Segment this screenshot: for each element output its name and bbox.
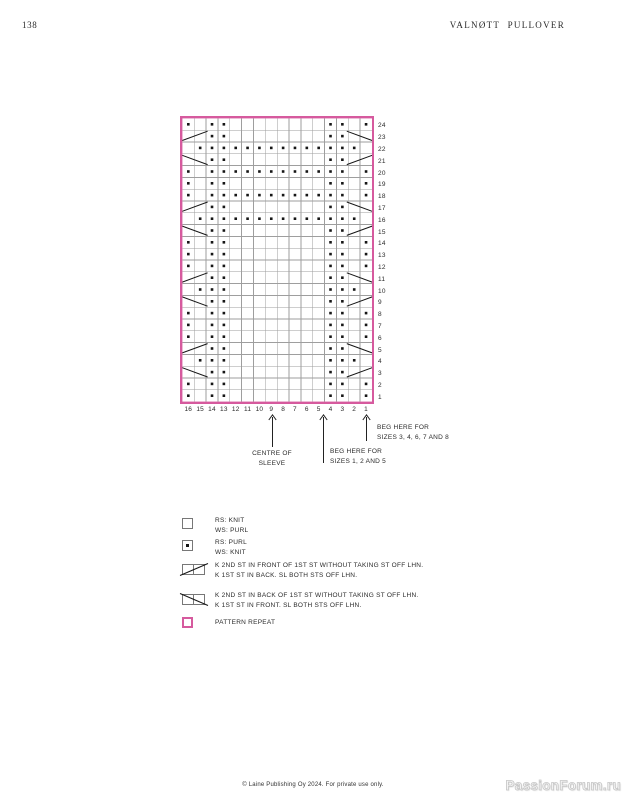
legend-text-line: K 1ST ST IN BACK. SL BOTH STS OFF LHN. bbox=[215, 571, 423, 581]
pattern-repeat-icon bbox=[182, 617, 193, 628]
legend-text-line: PATTERN REPEAT bbox=[215, 618, 275, 628]
purl-dot bbox=[353, 288, 356, 291]
purl-dot bbox=[294, 217, 297, 220]
purl-dot bbox=[223, 312, 226, 315]
purl-dot bbox=[341, 276, 344, 279]
purl-dot bbox=[199, 288, 202, 291]
chart-grid bbox=[180, 116, 374, 404]
purl-dot bbox=[223, 288, 226, 291]
purl-dot bbox=[341, 135, 344, 138]
row-number: 19 bbox=[378, 179, 394, 191]
row-number: 22 bbox=[378, 144, 394, 156]
purl-dot bbox=[329, 206, 332, 209]
column-number: 10 bbox=[253, 406, 265, 413]
purl-dot bbox=[341, 123, 344, 126]
purl-dot bbox=[282, 194, 285, 197]
purl-dot bbox=[187, 123, 190, 126]
purl-dot bbox=[223, 182, 226, 185]
purl-dot bbox=[329, 276, 332, 279]
purl-dot bbox=[329, 383, 332, 386]
purl-dot bbox=[365, 123, 368, 126]
column-number: 13 bbox=[218, 406, 230, 413]
purl-dot bbox=[234, 194, 237, 197]
purl-dot bbox=[353, 359, 356, 362]
purl-dot bbox=[341, 229, 344, 232]
legend-text-line: RS: KNIT bbox=[215, 516, 248, 526]
purl-dot bbox=[211, 241, 214, 244]
row-number: 24 bbox=[378, 120, 394, 132]
purl-dot bbox=[353, 147, 356, 150]
purl-dot bbox=[211, 170, 214, 173]
purl-dot bbox=[223, 123, 226, 126]
purl-dot bbox=[211, 335, 214, 338]
legend-text-line: K 2ND ST IN BACK OF 1ST ST WITHOUT TAKIN… bbox=[215, 591, 418, 601]
row-number: 15 bbox=[378, 227, 394, 239]
row-number: 13 bbox=[378, 250, 394, 262]
purl-dot bbox=[329, 359, 332, 362]
purl-dot bbox=[306, 147, 309, 150]
purl-dot bbox=[223, 147, 226, 150]
page-title: VALNØTT PULLOVER bbox=[450, 20, 565, 30]
up-arrow-beg-sizes-3-4-6-7-8 bbox=[362, 414, 371, 441]
purl-dot bbox=[329, 288, 332, 291]
centre-of-sleeve-label: CENTRE OF SLEEVE bbox=[227, 449, 317, 468]
purl-dot bbox=[270, 194, 273, 197]
purl-dot bbox=[341, 206, 344, 209]
purl-dot bbox=[270, 217, 273, 220]
knit-icon bbox=[182, 518, 193, 529]
cable-front-icon bbox=[180, 563, 208, 581]
purl-dot bbox=[341, 182, 344, 185]
column-number: 11 bbox=[242, 406, 254, 413]
purl-dot bbox=[258, 217, 261, 220]
purl-dot bbox=[329, 241, 332, 244]
column-number: 3 bbox=[336, 406, 348, 413]
purl-dot bbox=[365, 182, 368, 185]
row-number: 6 bbox=[378, 333, 394, 345]
purl-dot bbox=[329, 229, 332, 232]
purl-dot bbox=[306, 217, 309, 220]
row-number: 14 bbox=[378, 238, 394, 250]
purl-dot bbox=[211, 394, 214, 397]
purl-dot bbox=[211, 371, 214, 374]
purl-dot bbox=[329, 170, 332, 173]
purl-dot bbox=[223, 206, 226, 209]
purl-dot bbox=[341, 371, 344, 374]
row-number: 20 bbox=[378, 168, 394, 180]
purl-dot bbox=[341, 217, 344, 220]
purl-dot bbox=[294, 170, 297, 173]
purl-dot bbox=[341, 241, 344, 244]
purl-dot bbox=[223, 276, 226, 279]
purl-dot bbox=[223, 347, 226, 350]
row-number: 23 bbox=[378, 132, 394, 144]
row-number: 16 bbox=[378, 215, 394, 227]
purl-dot bbox=[199, 359, 202, 362]
purl-dot bbox=[223, 265, 226, 268]
row-number: 7 bbox=[378, 321, 394, 333]
purl-dot bbox=[223, 170, 226, 173]
legend-text-line: RS: PURL bbox=[215, 538, 247, 548]
purl-dot bbox=[199, 147, 202, 150]
purl-dot bbox=[211, 182, 214, 185]
up-arrow-centre-of-sleeve bbox=[268, 414, 277, 447]
column-number: 4 bbox=[325, 406, 337, 413]
purl-dot bbox=[223, 158, 226, 161]
purl-dot bbox=[187, 170, 190, 173]
purl-dot bbox=[223, 229, 226, 232]
beg-here-sizes-1-2-5-label: BEG HERE FOR SIZES 1, 2 AND 5 bbox=[330, 447, 386, 466]
purl-dot bbox=[329, 394, 332, 397]
column-number: 1 bbox=[360, 406, 372, 413]
purl-dot bbox=[329, 194, 332, 197]
purl-dot bbox=[294, 194, 297, 197]
row-number: 17 bbox=[378, 203, 394, 215]
column-number: 8 bbox=[277, 406, 289, 413]
purl-dot bbox=[223, 253, 226, 256]
column-number: 9 bbox=[265, 406, 277, 413]
purl-dot bbox=[341, 324, 344, 327]
purl-dot bbox=[365, 265, 368, 268]
column-number: 15 bbox=[194, 406, 206, 413]
row-number: 3 bbox=[378, 368, 394, 380]
purl-dot bbox=[317, 147, 320, 150]
purl-dot bbox=[306, 170, 309, 173]
purl-dot bbox=[211, 324, 214, 327]
purl-dot bbox=[211, 300, 214, 303]
centre-of-sleeve-line1: CENTRE OF bbox=[227, 449, 317, 459]
row-number: 11 bbox=[378, 274, 394, 286]
purl-dot bbox=[211, 194, 214, 197]
purl-dot bbox=[365, 312, 368, 315]
column-number: 7 bbox=[289, 406, 301, 413]
row-number: 8 bbox=[378, 309, 394, 321]
pattern-book-page: 138 VALNØTT PULLOVER 2423222120191817161… bbox=[0, 0, 626, 800]
purl-dot bbox=[187, 182, 190, 185]
purl-dot bbox=[223, 300, 226, 303]
legend-text-line: WS: PURL bbox=[215, 526, 248, 536]
purl-dot bbox=[329, 123, 332, 126]
purl-dot bbox=[270, 170, 273, 173]
purl-dot bbox=[317, 217, 320, 220]
purl-dot bbox=[187, 312, 190, 315]
knitting-chart bbox=[180, 116, 374, 409]
purl-dot bbox=[211, 229, 214, 232]
purl-dot bbox=[187, 253, 190, 256]
purl-dot bbox=[211, 312, 214, 315]
purl-dot bbox=[187, 394, 190, 397]
purl-dot bbox=[282, 147, 285, 150]
purl-dot bbox=[270, 147, 273, 150]
row-number: 9 bbox=[378, 297, 394, 309]
purl-dot bbox=[329, 312, 332, 315]
purl-dot bbox=[341, 394, 344, 397]
purl-dot bbox=[223, 241, 226, 244]
purl-dot bbox=[365, 335, 368, 338]
purl-dot bbox=[365, 383, 368, 386]
purl-dot bbox=[341, 147, 344, 150]
purl-dot bbox=[187, 241, 190, 244]
beg1-line2: SIZES 1, 2 AND 5 bbox=[330, 457, 386, 467]
purl-dot bbox=[341, 312, 344, 315]
purl-dot bbox=[211, 253, 214, 256]
purl-dot bbox=[282, 170, 285, 173]
purl-dot bbox=[223, 324, 226, 327]
purl-dot bbox=[341, 253, 344, 256]
purl-dot bbox=[258, 194, 261, 197]
column-number: 16 bbox=[182, 406, 194, 413]
row-number: 18 bbox=[378, 191, 394, 203]
purl-dot bbox=[341, 158, 344, 161]
purl-dot bbox=[365, 170, 368, 173]
purl-dot bbox=[223, 335, 226, 338]
purl-dot bbox=[199, 217, 202, 220]
purl-dot bbox=[329, 335, 332, 338]
purl-dot bbox=[211, 217, 214, 220]
beg1-line1: BEG HERE FOR bbox=[330, 447, 386, 457]
purl-dot bbox=[329, 347, 332, 350]
legend-text-line: K 2ND ST IN FRONT OF 1ST ST WITHOUT TAKI… bbox=[215, 561, 423, 571]
purl-dot bbox=[341, 300, 344, 303]
purl-dot bbox=[365, 324, 368, 327]
purl-dot bbox=[211, 276, 214, 279]
beg2-line1: BEG HERE FOR bbox=[377, 423, 449, 433]
purl-dot bbox=[234, 147, 237, 150]
purl-dot bbox=[329, 265, 332, 268]
row-number: 2 bbox=[378, 380, 394, 392]
purl-dot bbox=[223, 359, 226, 362]
purl-dot bbox=[329, 135, 332, 138]
purl-dot bbox=[341, 265, 344, 268]
purl-dot bbox=[211, 288, 214, 291]
purl-dot bbox=[187, 194, 190, 197]
purl-dot bbox=[329, 371, 332, 374]
purl-icon bbox=[182, 540, 193, 551]
purl-dot bbox=[317, 170, 320, 173]
purl-dot bbox=[365, 241, 368, 244]
purl-dot bbox=[341, 347, 344, 350]
purl-dot bbox=[211, 383, 214, 386]
purl-dot bbox=[246, 194, 249, 197]
purl-dot bbox=[246, 147, 249, 150]
row-number: 5 bbox=[378, 345, 394, 357]
centre-of-sleeve-line2: SLEEVE bbox=[227, 459, 317, 469]
purl-dot bbox=[223, 394, 226, 397]
purl-dot bbox=[234, 217, 237, 220]
purl-dot bbox=[187, 383, 190, 386]
purl-dot bbox=[353, 217, 356, 220]
purl-dot bbox=[329, 182, 332, 185]
purl-dot bbox=[341, 335, 344, 338]
purl-dot bbox=[365, 194, 368, 197]
column-number: 2 bbox=[348, 406, 360, 413]
purl-dot bbox=[306, 194, 309, 197]
purl-dot bbox=[223, 383, 226, 386]
row-number: 1 bbox=[378, 392, 394, 404]
purl-dot bbox=[329, 253, 332, 256]
watermark: PassionForum.ru bbox=[497, 775, 626, 798]
legend-text-line: K 1ST ST IN FRONT. SL BOTH STS OFF LHN. bbox=[215, 601, 418, 611]
purl-dot bbox=[258, 170, 261, 173]
row-number: 21 bbox=[378, 156, 394, 168]
purl-dot bbox=[187, 324, 190, 327]
purl-dot bbox=[329, 324, 332, 327]
purl-dot bbox=[187, 265, 190, 268]
row-number: 12 bbox=[378, 262, 394, 274]
purl-dot bbox=[329, 158, 332, 161]
purl-dot bbox=[246, 217, 249, 220]
purl-dot bbox=[223, 135, 226, 138]
purl-dot bbox=[329, 147, 332, 150]
purl-dot bbox=[211, 158, 214, 161]
purl-dot bbox=[317, 194, 320, 197]
beg2-line2: SIZES 3, 4, 6, 7 AND 8 bbox=[377, 433, 449, 443]
purl-dot bbox=[223, 217, 226, 220]
column-number: 12 bbox=[230, 406, 242, 413]
column-number: 14 bbox=[206, 406, 218, 413]
cable-back-icon bbox=[180, 593, 208, 611]
purl-dot bbox=[187, 335, 190, 338]
purl-dot bbox=[211, 147, 214, 150]
purl-dot bbox=[341, 194, 344, 197]
beg-here-sizes-3-4-6-7-8-label: BEG HERE FOR SIZES 3, 4, 6, 7 AND 8 bbox=[377, 423, 449, 442]
purl-dot bbox=[294, 147, 297, 150]
purl-dot bbox=[341, 170, 344, 173]
purl-dot bbox=[211, 265, 214, 268]
row-number: 4 bbox=[378, 356, 394, 368]
purl-dot bbox=[246, 170, 249, 173]
purl-dot bbox=[282, 217, 285, 220]
legend-text-line: WS: KNIT bbox=[215, 548, 247, 558]
purl-dot bbox=[329, 217, 332, 220]
purl-dot bbox=[223, 194, 226, 197]
column-number: 5 bbox=[313, 406, 325, 413]
up-arrow-beg-sizes-1-2-5 bbox=[319, 414, 328, 463]
row-number: 10 bbox=[378, 286, 394, 298]
purl-dot bbox=[211, 123, 214, 126]
purl-dot bbox=[234, 170, 237, 173]
purl-dot bbox=[365, 394, 368, 397]
purl-dot bbox=[211, 347, 214, 350]
purl-dot bbox=[329, 300, 332, 303]
purl-dot bbox=[211, 206, 214, 209]
purl-dot bbox=[211, 359, 214, 362]
page-number: 138 bbox=[22, 20, 37, 30]
purl-dot bbox=[341, 383, 344, 386]
purl-dot bbox=[341, 359, 344, 362]
purl-dot bbox=[341, 288, 344, 291]
purl-dot bbox=[365, 253, 368, 256]
purl-dot bbox=[211, 135, 214, 138]
purl-dot bbox=[223, 371, 226, 374]
purl-dot bbox=[258, 147, 261, 150]
column-number: 6 bbox=[301, 406, 313, 413]
